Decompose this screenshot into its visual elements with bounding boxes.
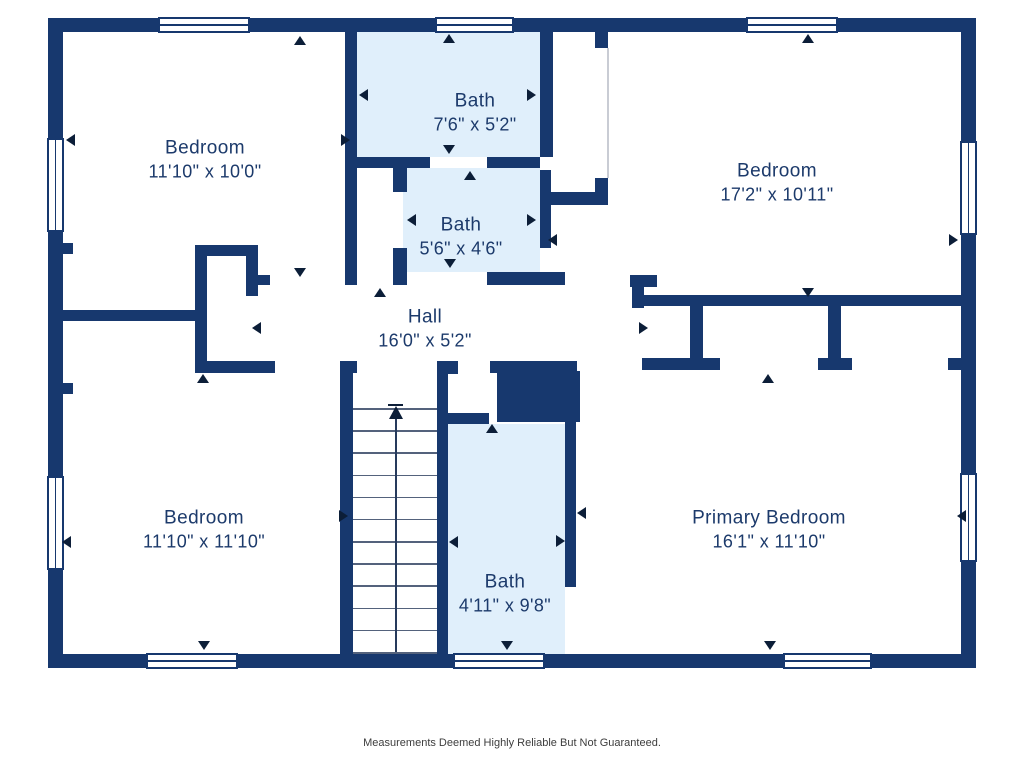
room-name: Hall bbox=[378, 305, 472, 330]
room-label: Bedroom11'10" x 11'10" bbox=[143, 506, 265, 555]
window-symbol bbox=[453, 653, 545, 669]
room-name: Bedroom bbox=[721, 159, 834, 184]
window-symbol bbox=[47, 476, 64, 570]
room-dimensions: 11'10" x 10'0" bbox=[149, 161, 262, 185]
wall bbox=[48, 232, 63, 476]
wall bbox=[828, 306, 841, 358]
door-swing-arrow bbox=[802, 34, 814, 43]
wall bbox=[48, 570, 63, 654]
door-swing-arrow bbox=[639, 322, 648, 334]
door-swing-arrow bbox=[339, 510, 348, 522]
window-mid-line bbox=[437, 24, 512, 26]
room-label: Bath4'11" x 9'8" bbox=[459, 570, 551, 619]
wall bbox=[545, 654, 783, 668]
room-label: Hall16'0" x 5'2" bbox=[378, 305, 472, 354]
door-swing-arrow bbox=[252, 322, 261, 334]
door-swing-arrow bbox=[66, 134, 75, 146]
door-swing-arrow bbox=[802, 288, 814, 297]
door-swing-arrow bbox=[62, 536, 71, 548]
door-swing-arrow bbox=[374, 288, 386, 297]
wall bbox=[961, 235, 976, 473]
door-swing-arrow bbox=[527, 214, 536, 226]
wall bbox=[447, 413, 489, 424]
wall bbox=[195, 245, 207, 373]
opening-line bbox=[607, 48, 609, 178]
door-swing-arrow bbox=[556, 535, 565, 547]
wall bbox=[948, 358, 976, 370]
wall bbox=[63, 383, 73, 394]
window-symbol bbox=[746, 17, 838, 33]
wall bbox=[63, 310, 195, 321]
door-swing-arrow bbox=[464, 171, 476, 180]
room-dimensions: 16'1" x 11'10" bbox=[692, 531, 846, 555]
door-swing-arrow bbox=[197, 374, 209, 383]
wall bbox=[393, 168, 407, 192]
room-name: Bath bbox=[433, 89, 516, 114]
wall bbox=[487, 272, 565, 285]
window-mid-line bbox=[968, 143, 970, 233]
window-mid-line bbox=[968, 475, 970, 560]
wall bbox=[393, 248, 407, 272]
wall bbox=[250, 18, 435, 32]
wall bbox=[258, 275, 270, 285]
bath-floor bbox=[447, 424, 565, 654]
door-swing-arrow bbox=[294, 268, 306, 277]
wall bbox=[340, 361, 357, 373]
room-label: Bath5'6" x 4'6" bbox=[419, 213, 502, 262]
door-swing-arrow bbox=[341, 134, 350, 146]
room-name: Bedroom bbox=[149, 136, 262, 161]
door-swing-arrow bbox=[577, 507, 586, 519]
door-swing-arrow bbox=[957, 510, 966, 522]
wall bbox=[238, 654, 453, 668]
wall bbox=[357, 157, 403, 168]
wall bbox=[872, 654, 976, 668]
stair-up-arrow bbox=[389, 406, 403, 419]
stair-direction-line bbox=[395, 418, 397, 652]
wall bbox=[48, 654, 146, 668]
room-dimensions: 4'11" x 9'8" bbox=[459, 595, 551, 619]
wall bbox=[540, 32, 553, 157]
door-swing-arrow bbox=[527, 89, 536, 101]
wall bbox=[550, 192, 608, 205]
door-swing-arrow bbox=[443, 34, 455, 43]
solid-block bbox=[497, 371, 580, 422]
wall bbox=[961, 32, 976, 141]
wall bbox=[63, 243, 73, 254]
wall bbox=[246, 256, 258, 296]
window-mid-line bbox=[55, 478, 57, 568]
window-symbol bbox=[783, 653, 872, 669]
room-name: Bedroom bbox=[143, 506, 265, 531]
window-symbol bbox=[47, 138, 64, 232]
wall bbox=[437, 361, 458, 374]
room-name: Bath bbox=[419, 213, 502, 238]
wall bbox=[642, 358, 720, 370]
door-swing-arrow bbox=[762, 374, 774, 383]
stair-tread bbox=[353, 652, 437, 654]
door-swing-arrow bbox=[198, 641, 210, 650]
window-symbol bbox=[158, 17, 250, 33]
wall bbox=[838, 18, 976, 32]
door-swing-arrow bbox=[449, 536, 458, 548]
window-symbol bbox=[435, 17, 514, 33]
door-swing-arrow bbox=[501, 641, 513, 650]
window-mid-line bbox=[785, 660, 870, 662]
room-label: Bedroom17'2" x 10'11" bbox=[721, 159, 834, 208]
window-mid-line bbox=[748, 24, 836, 26]
door-swing-arrow bbox=[548, 234, 557, 246]
door-swing-arrow bbox=[764, 641, 776, 650]
room-dimensions: 11'10" x 11'10" bbox=[143, 531, 265, 555]
room-label: Bedroom11'10" x 10'0" bbox=[149, 136, 262, 185]
window-mid-line bbox=[55, 140, 57, 230]
window-mid-line bbox=[455, 660, 543, 662]
floor-plan: Measurements Deemed Highly Reliable But … bbox=[0, 0, 1024, 768]
window-mid-line bbox=[160, 24, 248, 26]
wall bbox=[487, 157, 540, 168]
room-dimensions: 17'2" x 10'11" bbox=[721, 184, 834, 208]
room-dimensions: 7'6" x 5'2" bbox=[433, 114, 516, 138]
wall bbox=[403, 157, 430, 168]
window-symbol bbox=[146, 653, 238, 669]
room-dimensions: 5'6" x 4'6" bbox=[419, 238, 502, 262]
room-label: Primary Bedroom16'1" x 11'10" bbox=[692, 506, 846, 555]
door-swing-arrow bbox=[949, 234, 958, 246]
wall bbox=[514, 18, 746, 32]
wall bbox=[340, 361, 353, 654]
wall bbox=[818, 358, 852, 370]
wall bbox=[690, 306, 703, 358]
door-swing-arrow bbox=[294, 36, 306, 45]
wall bbox=[48, 18, 158, 32]
door-swing-arrow bbox=[407, 214, 416, 226]
room-name: Primary Bedroom bbox=[692, 506, 846, 531]
door-swing-arrow bbox=[443, 145, 455, 154]
wall bbox=[961, 562, 976, 654]
wall bbox=[393, 272, 407, 285]
disclaimer-text: Measurements Deemed Highly Reliable But … bbox=[363, 737, 661, 749]
room-label: Bath7'6" x 5'2" bbox=[433, 89, 516, 138]
door-swing-arrow bbox=[359, 89, 368, 101]
wall bbox=[437, 361, 448, 654]
room-dimensions: 16'0" x 5'2" bbox=[378, 330, 472, 354]
window-symbol bbox=[960, 141, 977, 235]
wall bbox=[195, 361, 275, 373]
wall bbox=[595, 32, 608, 48]
room-name: Bath bbox=[459, 570, 551, 595]
window-mid-line bbox=[148, 660, 236, 662]
wall bbox=[48, 32, 63, 138]
wall bbox=[345, 32, 357, 285]
door-swing-arrow bbox=[486, 424, 498, 433]
